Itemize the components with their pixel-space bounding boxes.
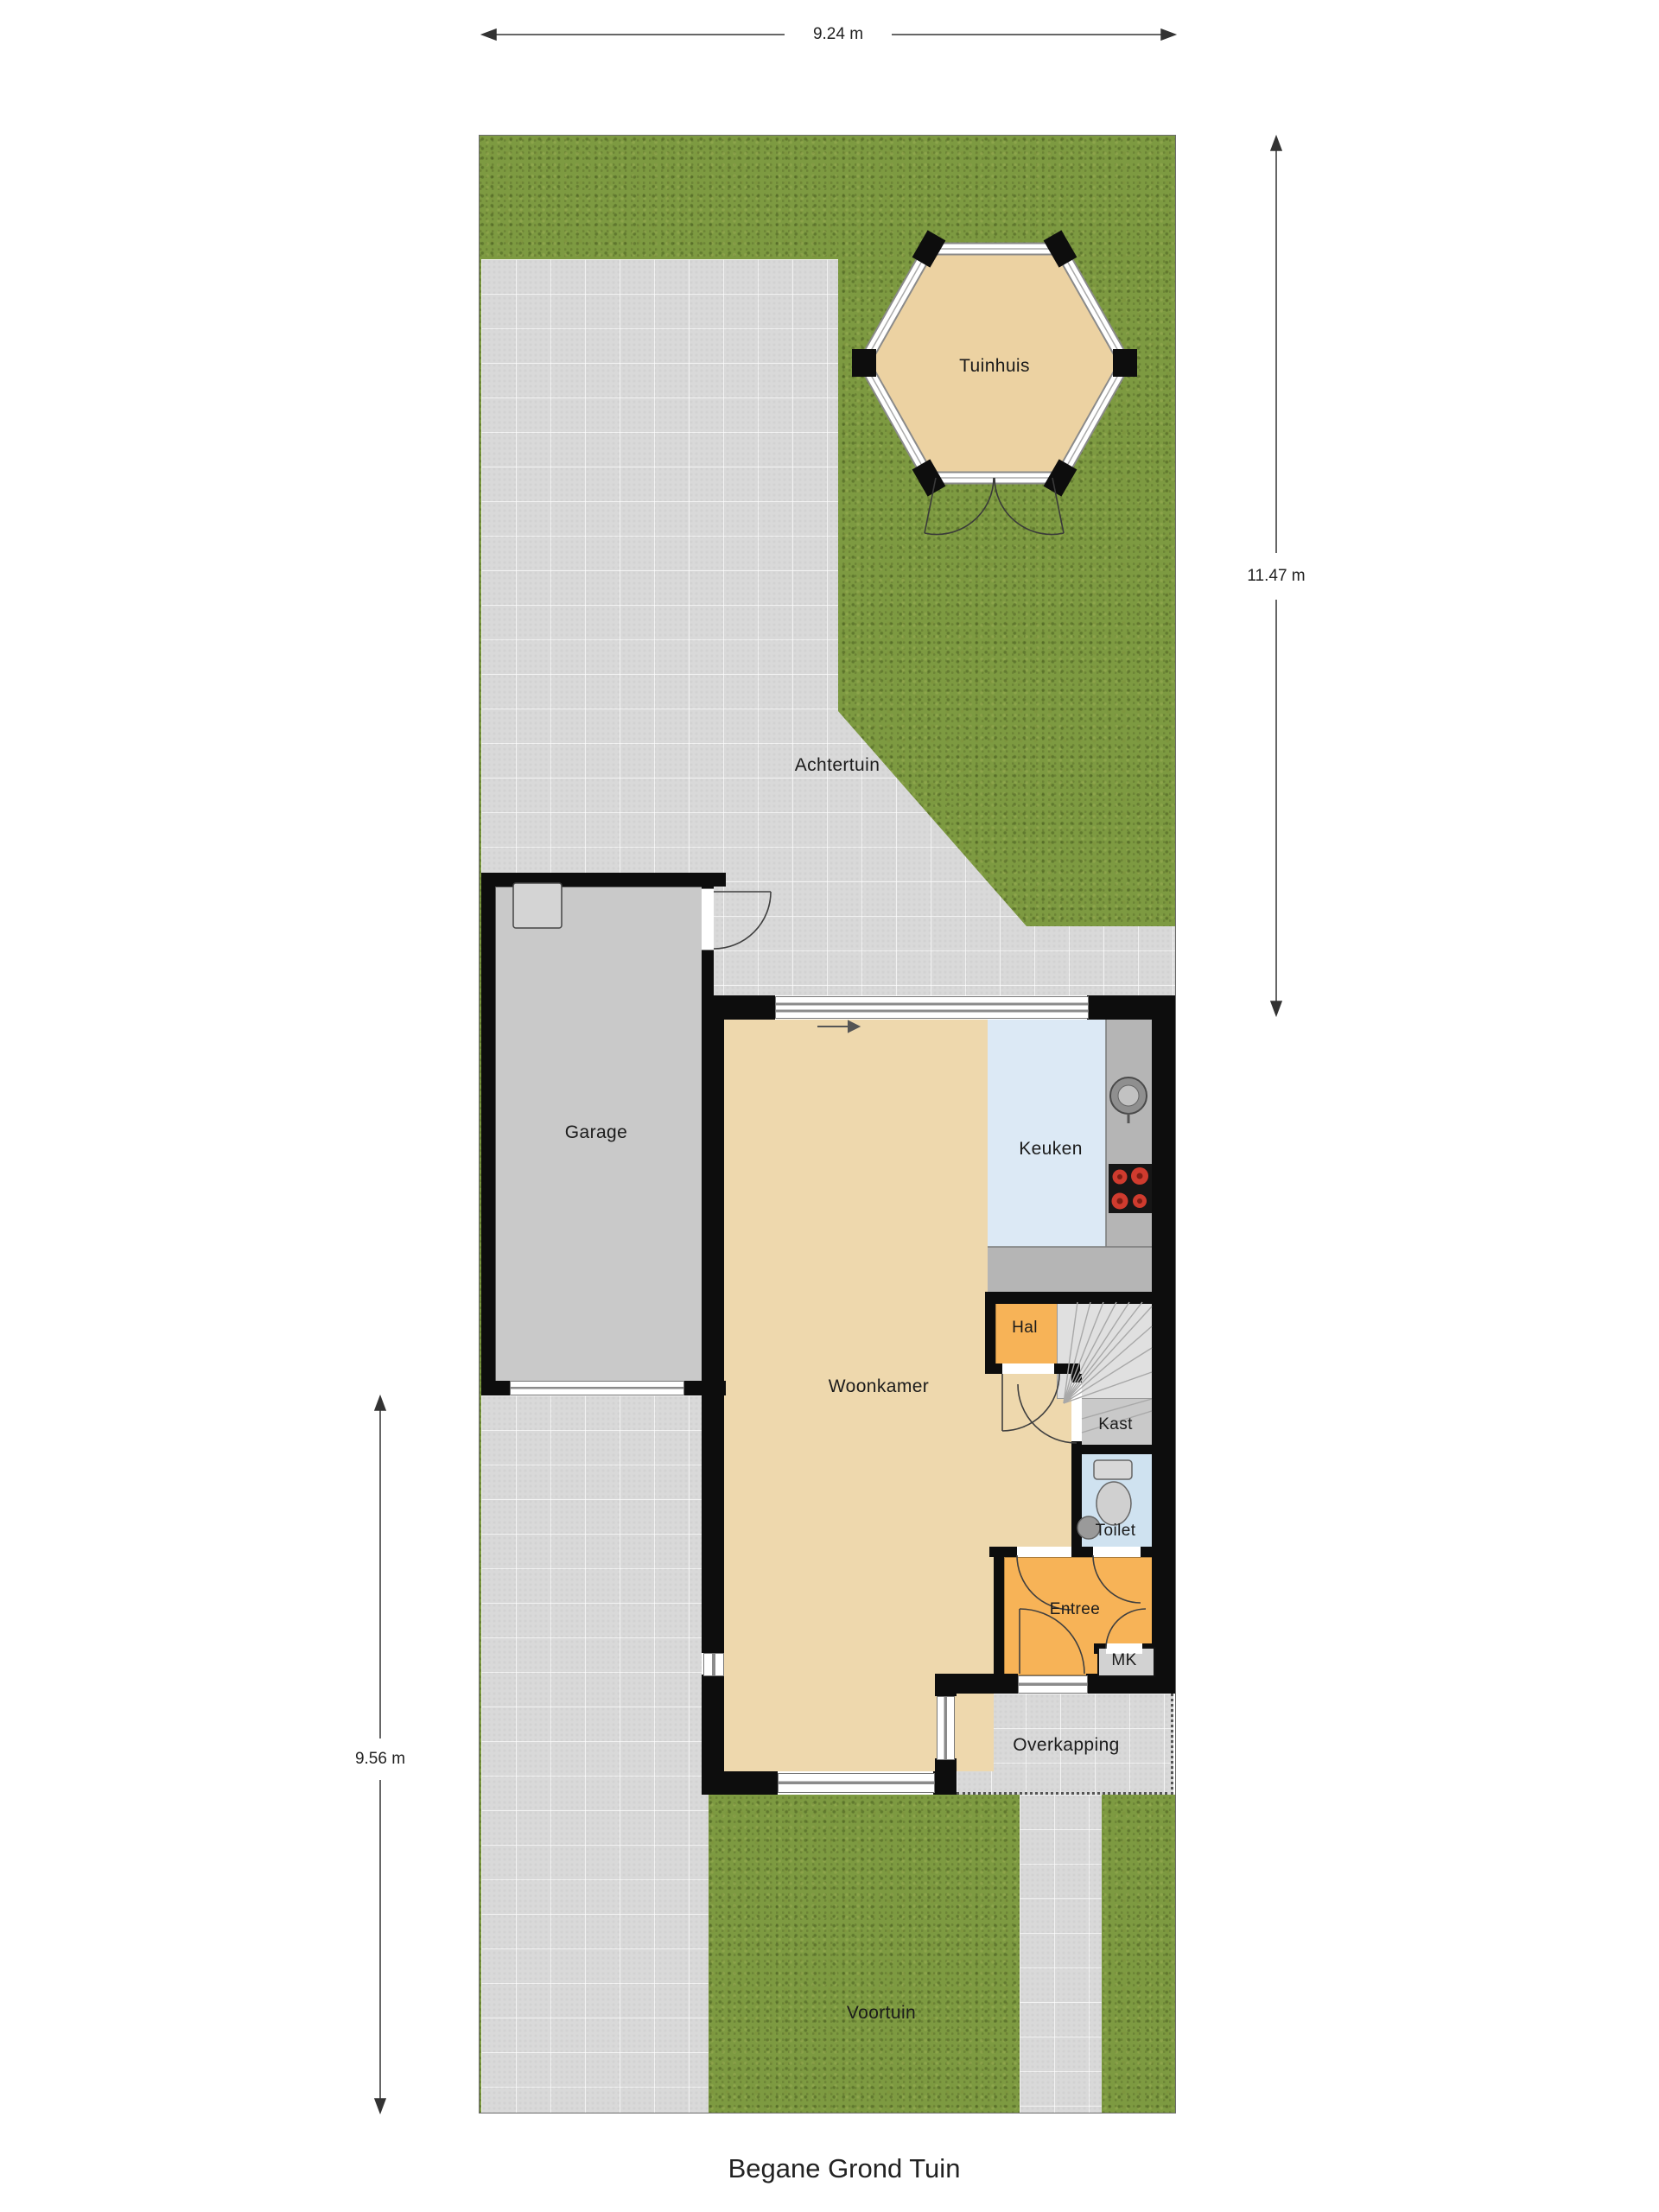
dimension-width-top: 9.24 m: [807, 23, 869, 46]
dimension-height-right: 11.47 m: [1241, 565, 1311, 588]
wall-segment: [1071, 1547, 1093, 1557]
wall-segment: [702, 995, 775, 1020]
wall-segment: [702, 1771, 778, 1795]
wall-segment: [1071, 1445, 1175, 1454]
label-woonkamer: Woonkamer: [829, 1376, 929, 1397]
page-title: Begane Grond Tuin: [728, 2153, 961, 2184]
side-window-left: [703, 1653, 724, 1676]
wall-segment: [1071, 1445, 1082, 1547]
sliding-door-window: [775, 996, 1089, 1019]
wall-segment: [935, 1758, 957, 1795]
wall-segment: [985, 1363, 1002, 1374]
driveway-paving: [481, 1395, 709, 2113]
toilet-door-opening: [1093, 1547, 1141, 1557]
label-kast: Kast: [1098, 1415, 1133, 1434]
hal-door-opening: [1002, 1363, 1054, 1374]
wall-segment: [702, 995, 724, 1653]
wall-segment: [985, 1292, 1175, 1304]
label-keuken: Keuken: [1019, 1139, 1083, 1160]
wall-segment: [702, 949, 714, 995]
floor-plan: Tuinhuis Achtertuin Garage Keuken Woonka…: [0, 0, 1659, 2212]
corridor-door-opening: [1071, 1382, 1082, 1441]
living-entree-door-opening: [1017, 1547, 1071, 1557]
label-entree: Entree: [1050, 1600, 1100, 1619]
label-achtertuin: Achtertuin: [795, 755, 880, 776]
wall-segment: [481, 873, 495, 1395]
wall-segment: [1054, 1363, 1080, 1374]
kitchen-counter-bottom: [988, 1247, 1152, 1294]
wall-segment: [994, 1547, 1004, 1674]
garage-side-door-opening: [702, 888, 714, 950]
label-hal: Hal: [1012, 1319, 1038, 1338]
living-room-window: [778, 1773, 935, 1793]
dimension-height-left: 9.56 m: [349, 1748, 411, 1770]
wall-segment: [702, 873, 714, 888]
label-toilet: Toilet: [1096, 1522, 1136, 1541]
wall-segment: [1141, 1547, 1175, 1557]
wall-segment: [1071, 1374, 1082, 1382]
garage-door: [510, 1381, 684, 1395]
wall-segment: [481, 873, 726, 887]
bay-window-right: [937, 1696, 955, 1760]
label-garage: Garage: [565, 1122, 627, 1143]
wall-segment: [985, 1292, 995, 1374]
wall-segment: [481, 1381, 510, 1395]
front-door-opening: [1018, 1675, 1088, 1694]
wall-segment: [935, 1674, 957, 1696]
label-overkapping: Overkapping: [1013, 1735, 1119, 1756]
label-voortuin: Voortuin: [847, 2003, 916, 2024]
label-mk: MK: [1111, 1651, 1136, 1670]
label-tuinhuis: Tuinhuis: [959, 356, 1030, 377]
wall-segment: [1152, 995, 1175, 1694]
woonkamer-floor-extension: [994, 1374, 1071, 1547]
front-garden-path: [1020, 1795, 1102, 2113]
